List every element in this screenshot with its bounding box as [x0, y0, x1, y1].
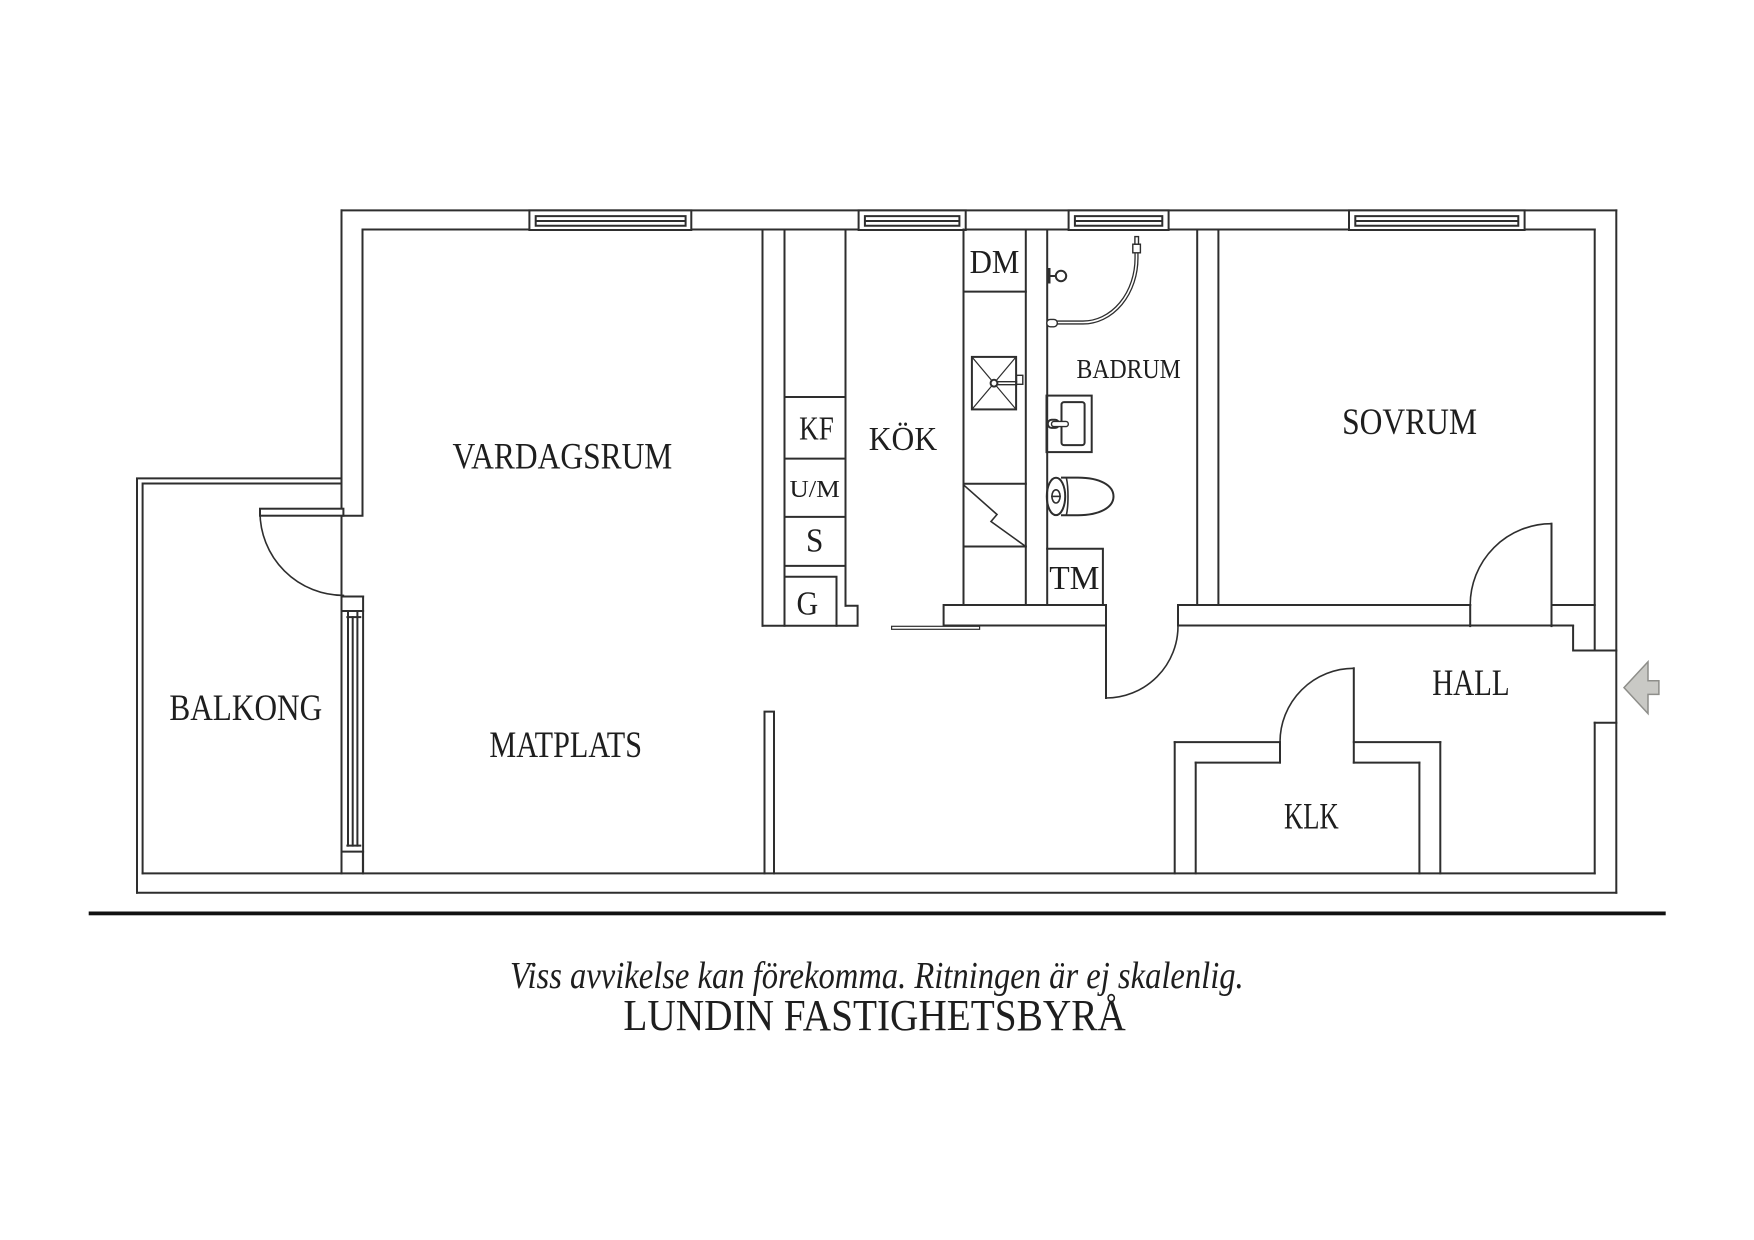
- svg-text:BALKONG: BALKONG: [169, 688, 322, 729]
- svg-text:U/M: U/M: [790, 477, 840, 503]
- svg-text:BADRUM: BADRUM: [1077, 354, 1181, 384]
- svg-text:KLK: KLK: [1284, 797, 1339, 838]
- svg-text:HALL: HALL: [1432, 663, 1510, 704]
- svg-text:MATPLATS: MATPLATS: [489, 725, 642, 766]
- svg-text:KF: KF: [799, 411, 834, 448]
- svg-text:G: G: [797, 585, 819, 622]
- svg-text:S: S: [806, 523, 823, 560]
- svg-text:VARDAGSRUM: VARDAGSRUM: [453, 437, 673, 478]
- svg-text:KÖK: KÖK: [869, 421, 938, 458]
- svg-text:LUNDIN FASTIGHETSBYRÅ: LUNDIN FASTIGHETSBYRÅ: [623, 991, 1126, 1040]
- svg-text:TM: TM: [1049, 560, 1099, 597]
- svg-text:DM: DM: [970, 244, 1020, 281]
- svg-text:SOVRUM: SOVRUM: [1342, 402, 1477, 443]
